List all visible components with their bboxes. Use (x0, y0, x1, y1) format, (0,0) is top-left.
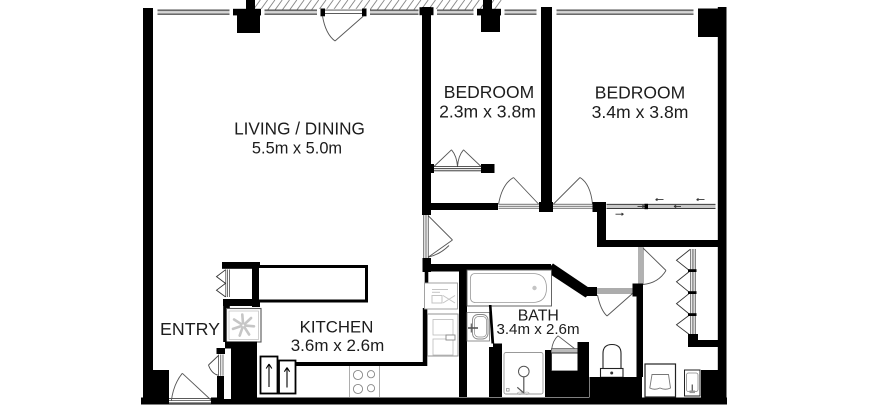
svg-text:ENTRY: ENTRY (160, 319, 220, 339)
svg-text:KITCHEN: KITCHEN (300, 317, 374, 336)
svg-text:3.4m x 3.8m: 3.4m x 3.8m (592, 102, 689, 122)
svg-text:5.5m x 5.0m: 5.5m x 5.0m (252, 140, 342, 158)
svg-text:2.3m x 3.8m: 2.3m x 3.8m (439, 101, 536, 121)
svg-text:BEDROOM: BEDROOM (595, 83, 685, 103)
svg-text:BEDROOM: BEDROOM (444, 82, 534, 102)
svg-text:LIVING / DINING: LIVING / DINING (234, 119, 365, 139)
svg-text:3.6m x 2.6m: 3.6m x 2.6m (291, 336, 385, 355)
svg-text:3.4m x 2.6m: 3.4m x 2.6m (496, 321, 579, 338)
